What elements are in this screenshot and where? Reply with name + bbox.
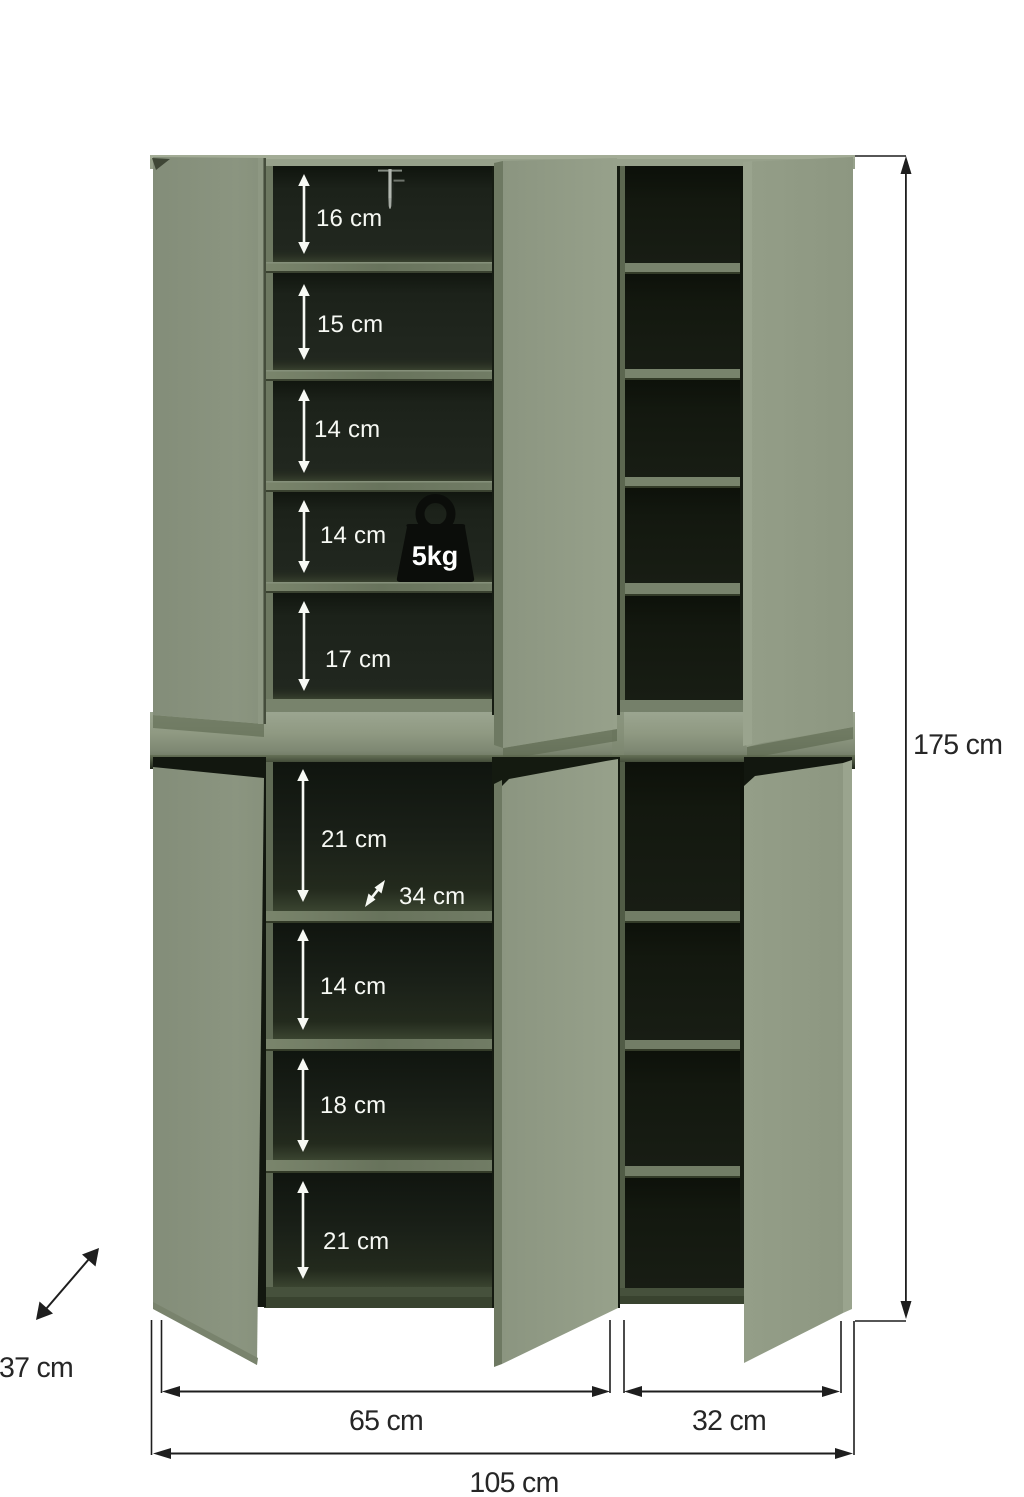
svg-text:14 cm: 14 cm bbox=[320, 973, 386, 1000]
svg-text:65 cm: 65 cm bbox=[349, 1405, 423, 1437]
svg-text:14 cm: 14 cm bbox=[320, 522, 386, 549]
svg-text:34 cm: 34 cm bbox=[399, 883, 465, 910]
svg-text:17 cm: 17 cm bbox=[325, 646, 391, 673]
svg-text:21 cm: 21 cm bbox=[321, 826, 387, 853]
svg-text:32 cm: 32 cm bbox=[692, 1405, 766, 1437]
svg-text:15 cm: 15 cm bbox=[317, 311, 383, 338]
svg-text:175 cm: 175 cm bbox=[913, 729, 1002, 761]
svg-text:105 cm: 105 cm bbox=[469, 1467, 558, 1497]
svg-text:37 cm: 37 cm bbox=[0, 1352, 73, 1384]
svg-text:14 cm: 14 cm bbox=[314, 416, 380, 443]
svg-text:16 cm: 16 cm bbox=[316, 205, 382, 232]
svg-text:21 cm: 21 cm bbox=[323, 1228, 389, 1255]
svg-text:5kg: 5kg bbox=[412, 541, 459, 571]
svg-text:18 cm: 18 cm bbox=[320, 1092, 386, 1119]
